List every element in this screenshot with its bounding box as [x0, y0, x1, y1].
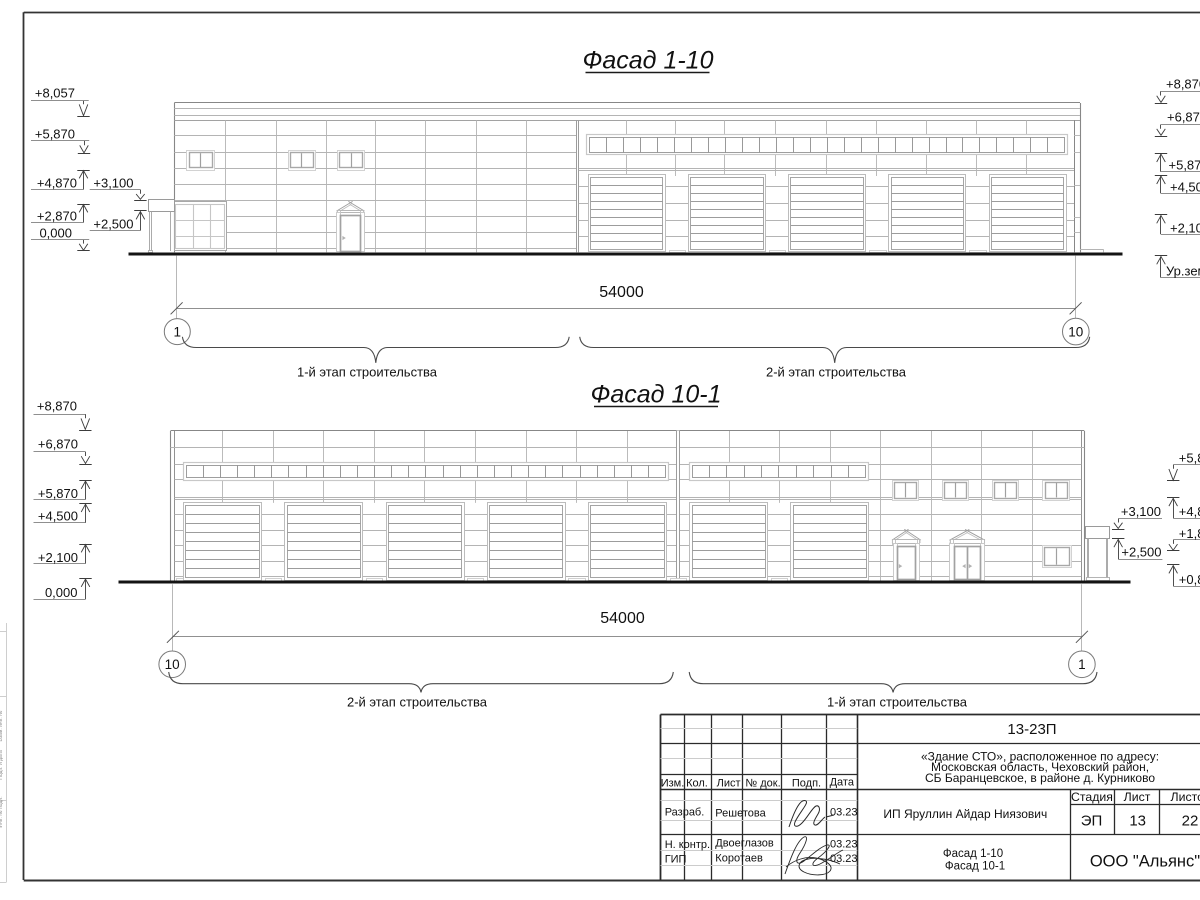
svg-text:+8,870: +8,870	[37, 398, 77, 413]
svg-text:2-й этап строительства: 2-й этап строительства	[347, 695, 488, 710]
svg-text:+4,870: +4,870	[1179, 504, 1200, 519]
svg-text:+4,500: +4,500	[38, 509, 78, 524]
svg-text:№ док.: № док.	[745, 777, 780, 789]
svg-text:Инв. № подл.: Инв. № подл.	[0, 796, 4, 827]
svg-text:Лист: Лист	[717, 777, 741, 789]
svg-text:+5,870: +5,870	[35, 127, 75, 142]
svg-text:Ур.земли: Ур.земли	[1166, 264, 1200, 279]
svg-text:Лист: Лист	[1124, 790, 1151, 804]
svg-text:Фасад 10-1: Фасад 10-1	[945, 860, 1005, 872]
svg-text:0,000: 0,000	[39, 226, 72, 241]
svg-text:1-й этап строительства: 1-й этап строительства	[827, 695, 968, 710]
svg-text:Взам. инв. №: Взам. инв. №	[0, 711, 4, 742]
svg-text:Дата: Дата	[830, 776, 855, 788]
svg-text:+8,870: +8,870	[1166, 77, 1200, 92]
svg-text:ИП Яруллин Айдар Ниязович: ИП Яруллин Айдар Ниязович	[883, 807, 1047, 821]
svg-text:+4,870: +4,870	[37, 176, 77, 191]
svg-text:13-23П: 13-23П	[1007, 721, 1056, 738]
svg-text:Двоеглазов: Двоеглазов	[715, 838, 774, 850]
svg-text:+6,870: +6,870	[38, 437, 78, 452]
svg-text:54000: 54000	[600, 610, 645, 627]
svg-text:03.23: 03.23	[830, 839, 858, 851]
svg-text:Решетова: Решетова	[715, 807, 766, 819]
svg-text:+6,870: +6,870	[1167, 109, 1200, 124]
svg-text:+5,870: +5,870	[1169, 158, 1200, 173]
svg-text:+2,500: +2,500	[93, 217, 133, 232]
svg-text:Подп. и дата: Подп. и дата	[0, 750, 4, 780]
svg-text:Листов: Листов	[1171, 790, 1200, 804]
svg-text:13: 13	[1129, 813, 1146, 830]
svg-text:Изм.: Изм.	[661, 777, 685, 789]
svg-text:+2,100: +2,100	[1170, 220, 1200, 235]
svg-text:Н. контр.: Н. контр.	[665, 839, 710, 851]
svg-text:СБ Баранцевское, в районе д. К: СБ Баранцевское, в районе д. Курниково	[925, 771, 1155, 785]
svg-text:2-й этап строительства: 2-й этап строительства	[766, 365, 907, 380]
svg-text:ГИП: ГИП	[665, 854, 687, 866]
svg-text:ЭП: ЭП	[1081, 813, 1103, 830]
svg-text:1-й этап строительства: 1-й этап строительства	[297, 365, 438, 380]
svg-text:+3,100: +3,100	[1121, 504, 1161, 519]
svg-text:Фасад 1-10: Фасад 1-10	[943, 848, 1003, 860]
svg-text:1: 1	[174, 324, 182, 339]
svg-text:+5,870: +5,870	[1179, 450, 1200, 465]
svg-text:+5,870: +5,870	[38, 486, 78, 501]
svg-text:1: 1	[1078, 657, 1086, 672]
svg-text:Стадия: Стадия	[1071, 790, 1113, 804]
svg-text:+3,100: +3,100	[93, 176, 133, 191]
svg-text:+4,500: +4,500	[1170, 179, 1200, 194]
svg-text:03.23: 03.23	[830, 807, 858, 819]
svg-text:0,000: 0,000	[45, 585, 78, 600]
svg-text:+0,870: +0,870	[1179, 572, 1200, 587]
svg-text:Разраб.: Разраб.	[665, 807, 705, 819]
svg-text:+2,870: +2,870	[37, 209, 77, 224]
svg-text:22: 22	[1182, 813, 1199, 830]
svg-text:+1,870: +1,870	[1179, 526, 1200, 541]
svg-text:Фасад 10-1: Фасад 10-1	[591, 380, 722, 408]
svg-text:54000: 54000	[599, 284, 644, 301]
svg-text:+8,057: +8,057	[35, 86, 75, 101]
svg-text:Коротаев: Коротаев	[715, 853, 763, 865]
svg-text:+2,100: +2,100	[38, 550, 78, 565]
svg-text:Подп.: Подп.	[792, 777, 821, 789]
svg-text:+2,500: +2,500	[1121, 544, 1161, 559]
svg-text:10: 10	[1068, 324, 1083, 339]
svg-text:Кол.: Кол.	[686, 777, 708, 789]
svg-text:10: 10	[165, 657, 180, 672]
svg-text:Фасад 1-10: Фасад 1-10	[583, 46, 714, 74]
svg-text:ООО "Альянс": ООО "Альянс"	[1090, 853, 1200, 871]
